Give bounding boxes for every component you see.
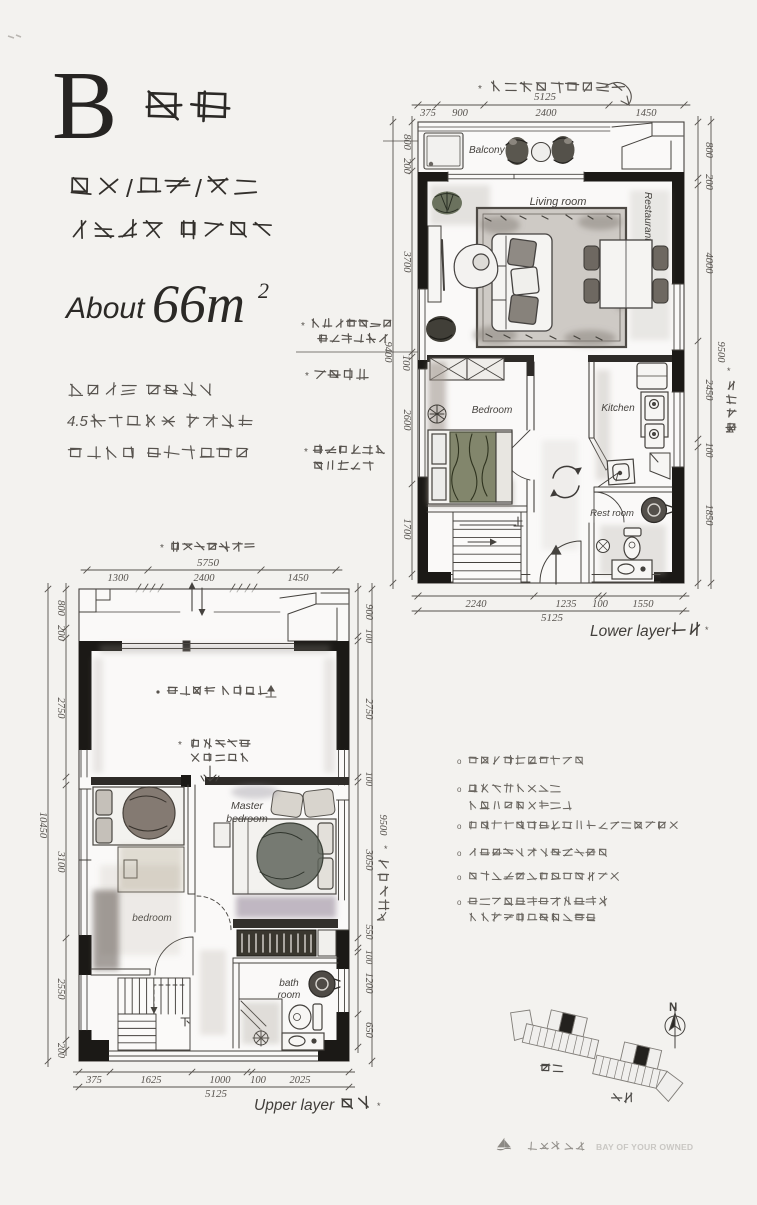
svg-text:10450: 10450 [37, 812, 48, 839]
svg-text:*: * [178, 740, 182, 751]
svg-text:/: / [126, 175, 133, 203]
svg-text:Kitchen: Kitchen [601, 403, 635, 414]
svg-text:100: 100 [592, 599, 609, 610]
svg-text:*: * [727, 366, 731, 376]
svg-text:1700: 1700 [401, 519, 412, 541]
svg-text:1850: 1850 [703, 505, 714, 527]
svg-text:bath: bath [279, 978, 299, 989]
svg-text:1450: 1450 [636, 108, 658, 119]
svg-text:1300: 1300 [108, 573, 130, 584]
svg-text:o: o [457, 873, 462, 882]
svg-text:BAY OF YOUR OWNED: BAY OF YOUR OWNED [596, 1142, 693, 1152]
svg-text:100: 100 [363, 950, 373, 965]
svg-text:o: o [457, 898, 462, 907]
svg-text:9500: 9500 [715, 342, 726, 364]
svg-text:Living room: Living room [530, 196, 587, 208]
svg-text:4000: 4000 [703, 253, 714, 275]
svg-text:2600: 2600 [401, 410, 412, 432]
svg-text:2400: 2400 [194, 573, 216, 584]
svg-text:375: 375 [419, 108, 436, 119]
svg-text:o: o [457, 757, 462, 766]
svg-text:2550: 2550 [55, 979, 66, 1001]
svg-text:*: * [384, 844, 388, 854]
svg-text:200: 200 [401, 158, 412, 175]
svg-text:100: 100 [400, 355, 411, 372]
svg-text:375: 375 [85, 1075, 102, 1086]
svg-text:100: 100 [363, 772, 373, 787]
svg-text:1625: 1625 [141, 1075, 162, 1086]
svg-text:B: B [52, 52, 117, 160]
svg-text:o: o [457, 822, 462, 831]
svg-text:Bedroom: Bedroom [472, 405, 513, 416]
svg-text:200: 200 [55, 625, 66, 642]
svg-text:2750: 2750 [55, 698, 66, 720]
svg-text:*: * [377, 1101, 381, 1111]
svg-text:*: * [301, 321, 305, 332]
svg-text:9500: 9500 [377, 815, 388, 837]
svg-text:1450: 1450 [288, 573, 310, 584]
svg-text:2240: 2240 [466, 599, 488, 610]
svg-text:3100: 3100 [55, 851, 66, 874]
svg-text:5750: 5750 [197, 557, 220, 569]
svg-text:N: N [669, 1002, 677, 1014]
svg-text:100: 100 [363, 629, 373, 644]
svg-text:*: * [160, 543, 164, 554]
svg-text:3700: 3700 [401, 251, 412, 274]
svg-text:Upper layer: Upper layer [254, 1097, 335, 1114]
svg-text:*: * [304, 447, 308, 458]
svg-text:200: 200 [703, 174, 714, 191]
svg-text:900: 900 [452, 108, 469, 119]
svg-text:2: 2 [258, 278, 269, 303]
svg-text:bedroom: bedroom [226, 813, 268, 825]
svg-text:1235: 1235 [556, 599, 577, 610]
svg-text:5125: 5125 [205, 1088, 228, 1100]
svg-text:*: * [705, 625, 709, 635]
svg-text:100: 100 [250, 1075, 267, 1086]
svg-text:2400: 2400 [536, 108, 558, 119]
svg-text:200: 200 [55, 1043, 66, 1058]
svg-text:Rest room: Rest room [590, 508, 634, 519]
svg-text:2025: 2025 [290, 1075, 311, 1086]
svg-text:Balcony: Balcony [469, 145, 506, 156]
svg-text:5125: 5125 [541, 612, 564, 624]
svg-text:4.5: 4.5 [67, 413, 89, 430]
svg-text:Restaurant: Restaurant [642, 192, 653, 242]
svg-text:100: 100 [703, 443, 714, 458]
svg-text:About: About [64, 292, 146, 325]
svg-text:*: * [305, 371, 309, 382]
svg-text:800: 800 [55, 600, 66, 617]
svg-text:5125: 5125 [534, 91, 557, 103]
svg-text:66m: 66m [152, 274, 245, 334]
svg-text:/: / [195, 175, 202, 203]
svg-text:Lower layer: Lower layer [590, 623, 671, 640]
svg-text:o: o [457, 785, 462, 794]
svg-text:Master: Master [231, 800, 264, 812]
svg-text:*: * [478, 84, 482, 95]
svg-text:1000: 1000 [210, 1075, 232, 1086]
svg-text:2450: 2450 [703, 380, 714, 402]
svg-text:o: o [457, 849, 462, 858]
svg-text:800: 800 [703, 142, 714, 159]
svg-text:1550: 1550 [633, 599, 655, 610]
svg-text:800: 800 [401, 134, 412, 151]
